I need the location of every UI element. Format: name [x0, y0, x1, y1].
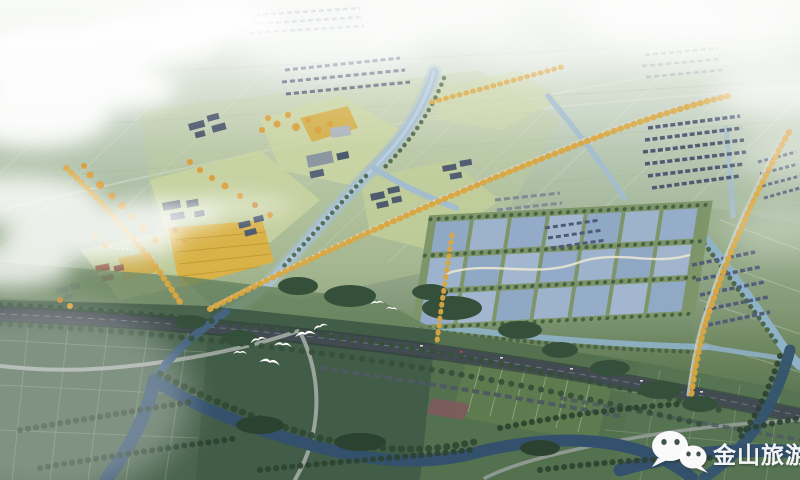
watermark-text: 金山旅游: [712, 442, 800, 469]
aerial-render-image: 金山旅游: [0, 0, 800, 480]
scene: 金山旅游: [0, 0, 800, 480]
